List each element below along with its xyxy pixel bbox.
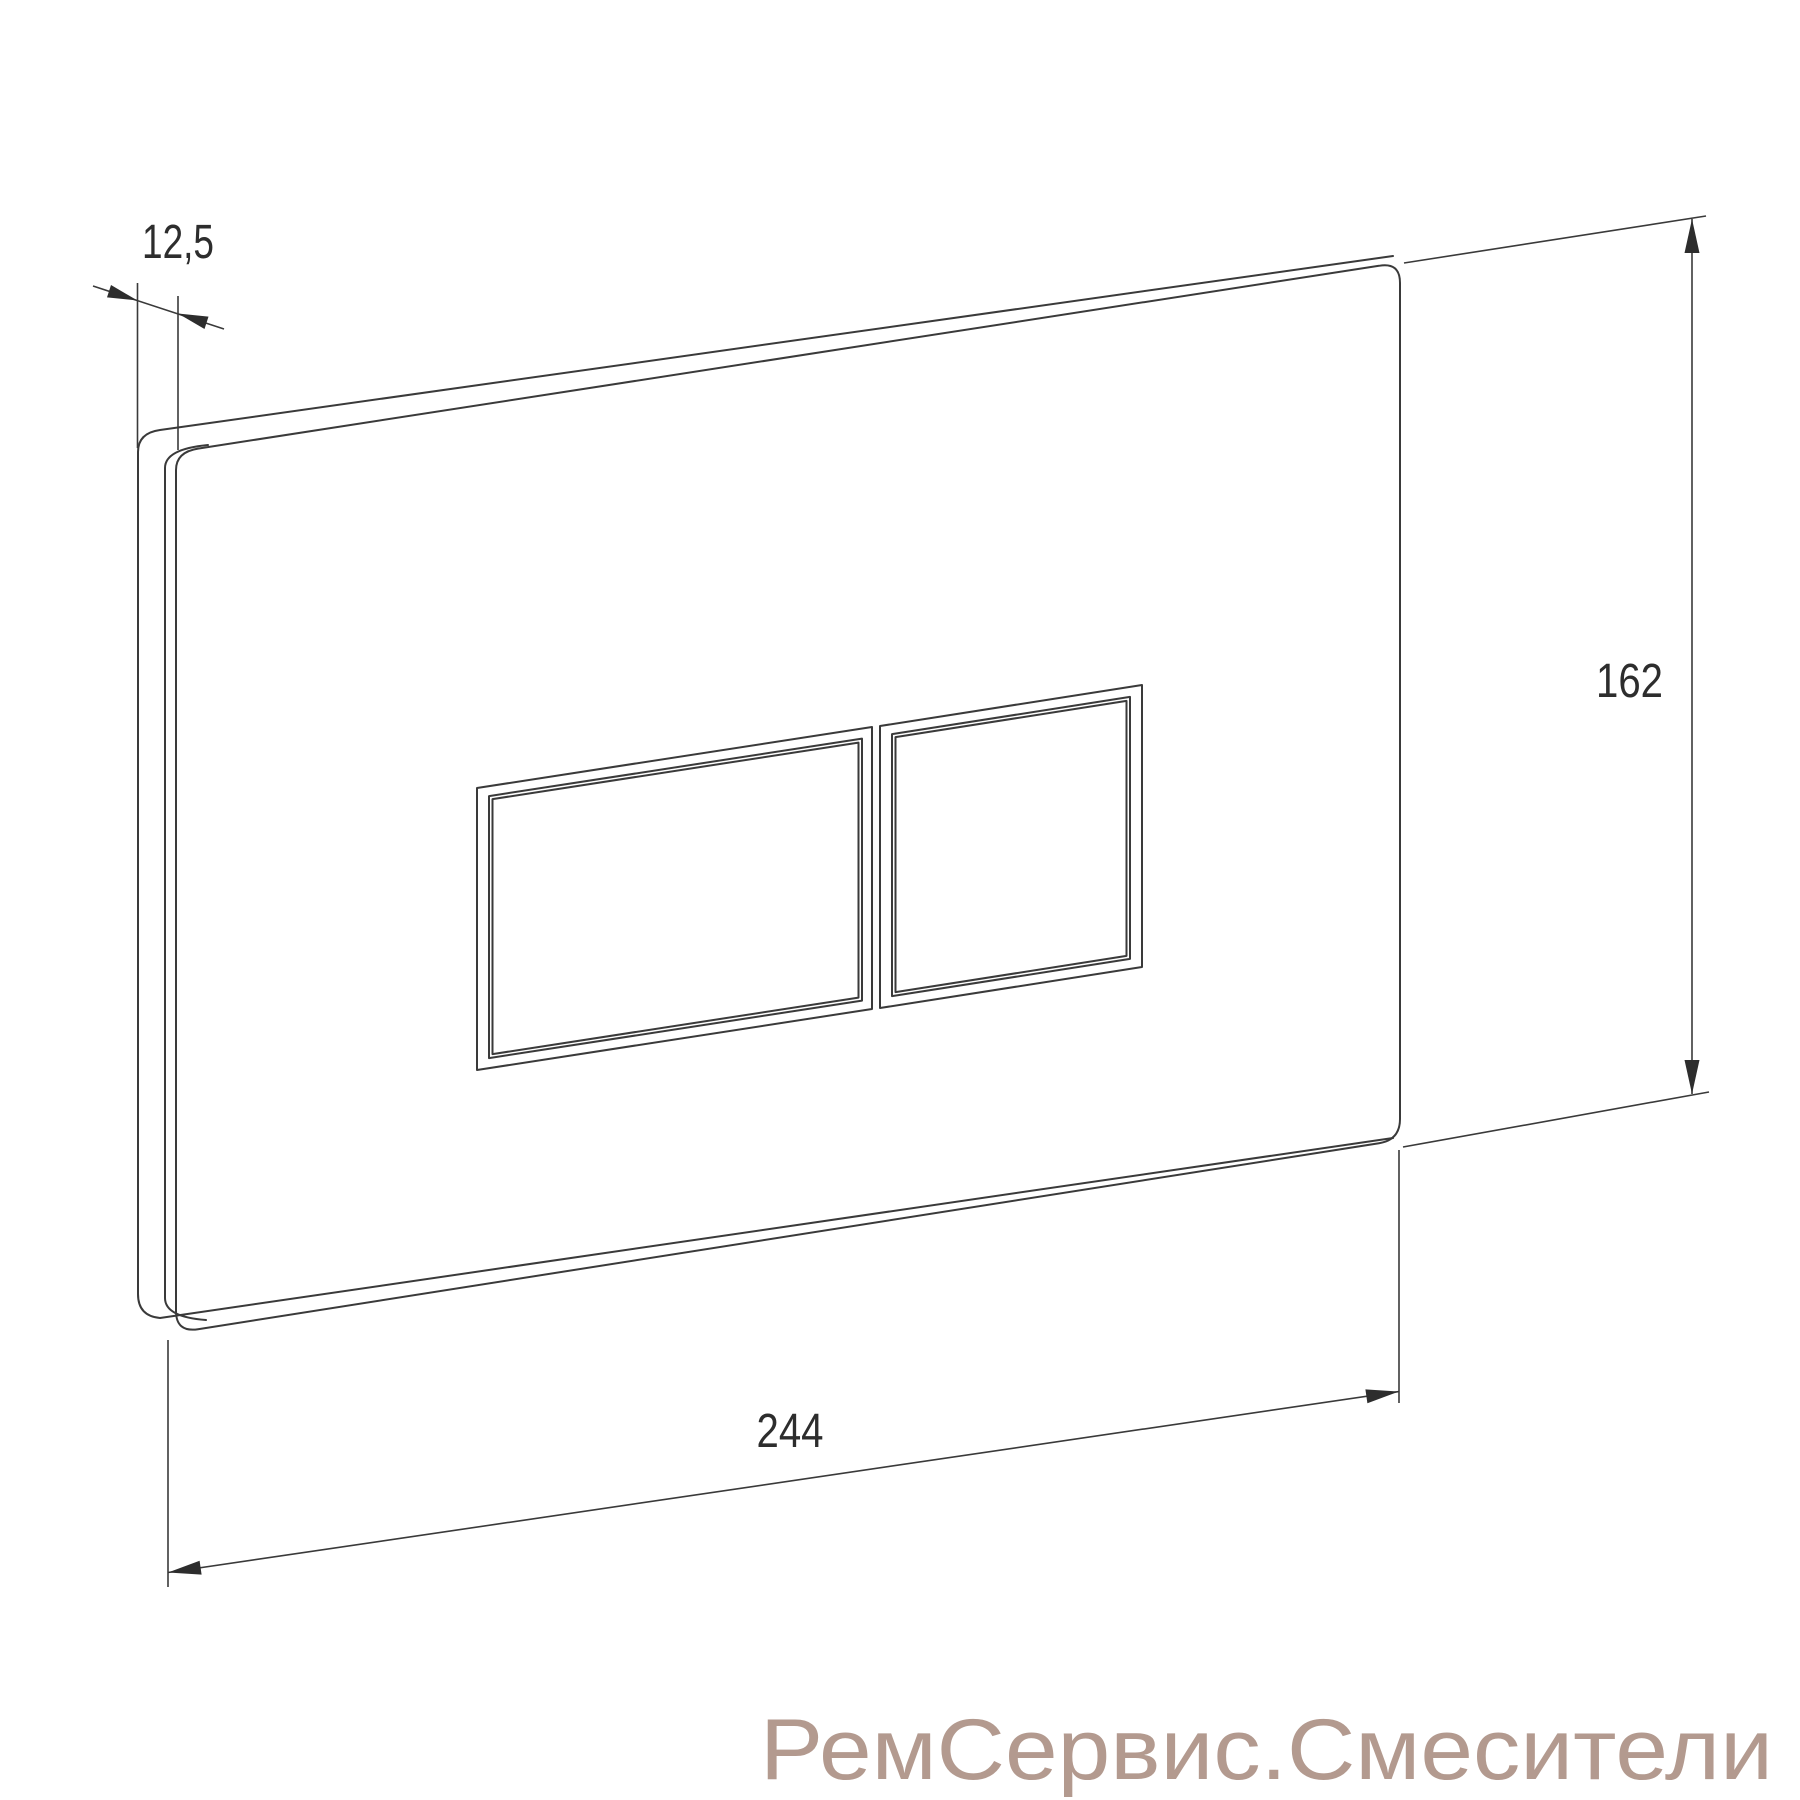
width-dimension: 244 xyxy=(168,1150,1399,1587)
plate-back-outline xyxy=(138,256,1393,1318)
right-button-outer-edge xyxy=(892,697,1130,996)
thickness-dimension-label: 12,5 xyxy=(142,216,214,269)
left-button-inner-edge xyxy=(493,743,859,1055)
thickness-dimension: 12,5 xyxy=(93,216,224,450)
watermark-text: РемСервис.Смесители xyxy=(760,1702,1773,1798)
left-button-recess-outline xyxy=(477,727,872,1070)
height-dimension: 162 xyxy=(1403,216,1709,1147)
right-flush-button xyxy=(880,685,1142,1008)
flush-plate xyxy=(138,256,1400,1330)
right-button-inner-edge xyxy=(896,701,1127,992)
thickness-arrowhead-right xyxy=(178,314,209,330)
height-dimension-label: 162 xyxy=(1596,655,1663,708)
width-dimension-label: 244 xyxy=(757,1405,824,1458)
drawing-canvas: 12,5 162 244 РемСервис.Смесители xyxy=(0,0,1800,1800)
plate-front-face xyxy=(176,265,1400,1329)
flush-plate-dimension-drawing: 12,5 162 244 РемСервис.Смесители xyxy=(0,0,1800,1800)
width-arrowhead-left xyxy=(168,1561,202,1575)
thickness-arrowhead-left xyxy=(107,285,138,301)
width-arrowhead-right xyxy=(1365,1389,1399,1403)
height-arrowhead-up xyxy=(1685,219,1700,253)
plate-left-fillet-line xyxy=(165,445,208,1320)
height-extension-line-top xyxy=(1404,216,1706,263)
left-button-outer-edge xyxy=(489,739,862,1059)
left-flush-button xyxy=(477,727,872,1070)
height-extension-line-bottom xyxy=(1403,1092,1709,1147)
height-arrowhead-down xyxy=(1685,1060,1700,1094)
